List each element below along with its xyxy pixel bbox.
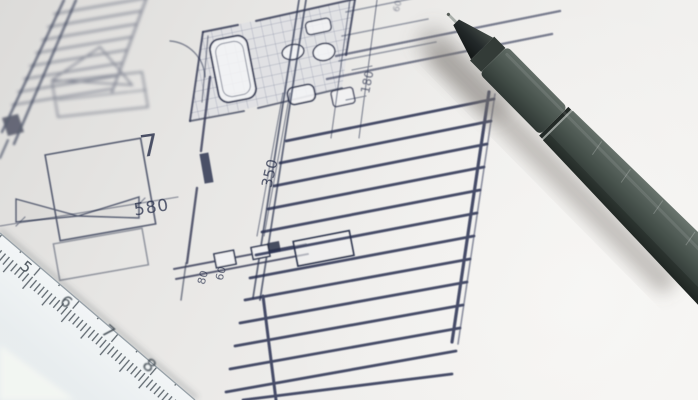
photo-floor-plan-scene: 7 580 350 80 60 180 60 5 6 7 8: [0, 0, 698, 400]
room-number-label: 7: [138, 131, 161, 163]
dimension-label-80: 80: [196, 269, 210, 285]
fixture-symbol: [331, 87, 356, 107]
dimension-label-60: 60: [214, 265, 228, 281]
